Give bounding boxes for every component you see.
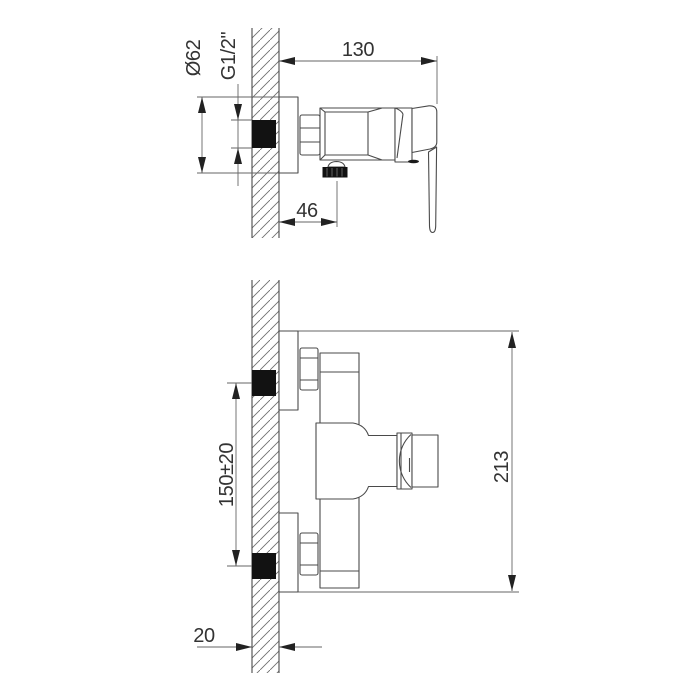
lower-wall-pipe xyxy=(252,553,276,579)
dim-outlet-offset-label: 46 xyxy=(296,200,318,222)
lower-flange xyxy=(279,513,298,592)
upper-flange xyxy=(279,331,298,410)
handle-seam xyxy=(408,160,419,163)
mounting-nut xyxy=(300,115,320,155)
upper-mounting-nut xyxy=(300,348,318,390)
dim-outlet-offset: 46 xyxy=(279,181,337,227)
lower-mounting-nut xyxy=(300,533,318,575)
upper-wall-pipe xyxy=(252,370,276,396)
side-view: Ø62 G1/2" xyxy=(183,28,437,238)
dim-total-height: 213 xyxy=(491,332,516,591)
wall-pipe-connection xyxy=(252,120,276,148)
escutcheon-flange xyxy=(279,97,298,173)
dim-depth-label: 130 xyxy=(342,39,374,61)
cartridge-cover xyxy=(395,108,412,162)
front-view: 150±20 213 20 xyxy=(193,280,519,673)
dim-thread-label: G1/2" xyxy=(218,31,240,80)
technical-drawing-page: Ø62 G1/2" xyxy=(0,0,700,700)
mixer-body xyxy=(320,108,395,160)
lever-handle xyxy=(408,106,437,233)
dim-wall-thickness-label: 20 xyxy=(193,625,215,647)
wall-section-front xyxy=(252,280,279,673)
dim-inlet-spacing: 150±20 xyxy=(216,383,252,566)
shower-hose-outlet xyxy=(323,162,348,178)
dim-thread: G1/2" xyxy=(218,31,252,186)
dim-total-height-label: 213 xyxy=(491,451,513,483)
cartridge-ring xyxy=(397,433,412,489)
dim-inlet-spacing-label: 150±20 xyxy=(216,443,238,507)
valve-chamber xyxy=(316,423,397,499)
dim-flange-diameter-label: Ø62 xyxy=(183,39,205,76)
shower-mixer-installation-drawing: Ø62 G1/2" xyxy=(0,0,700,700)
dim-depth: 130 xyxy=(279,39,437,104)
handle-knob xyxy=(412,435,438,487)
